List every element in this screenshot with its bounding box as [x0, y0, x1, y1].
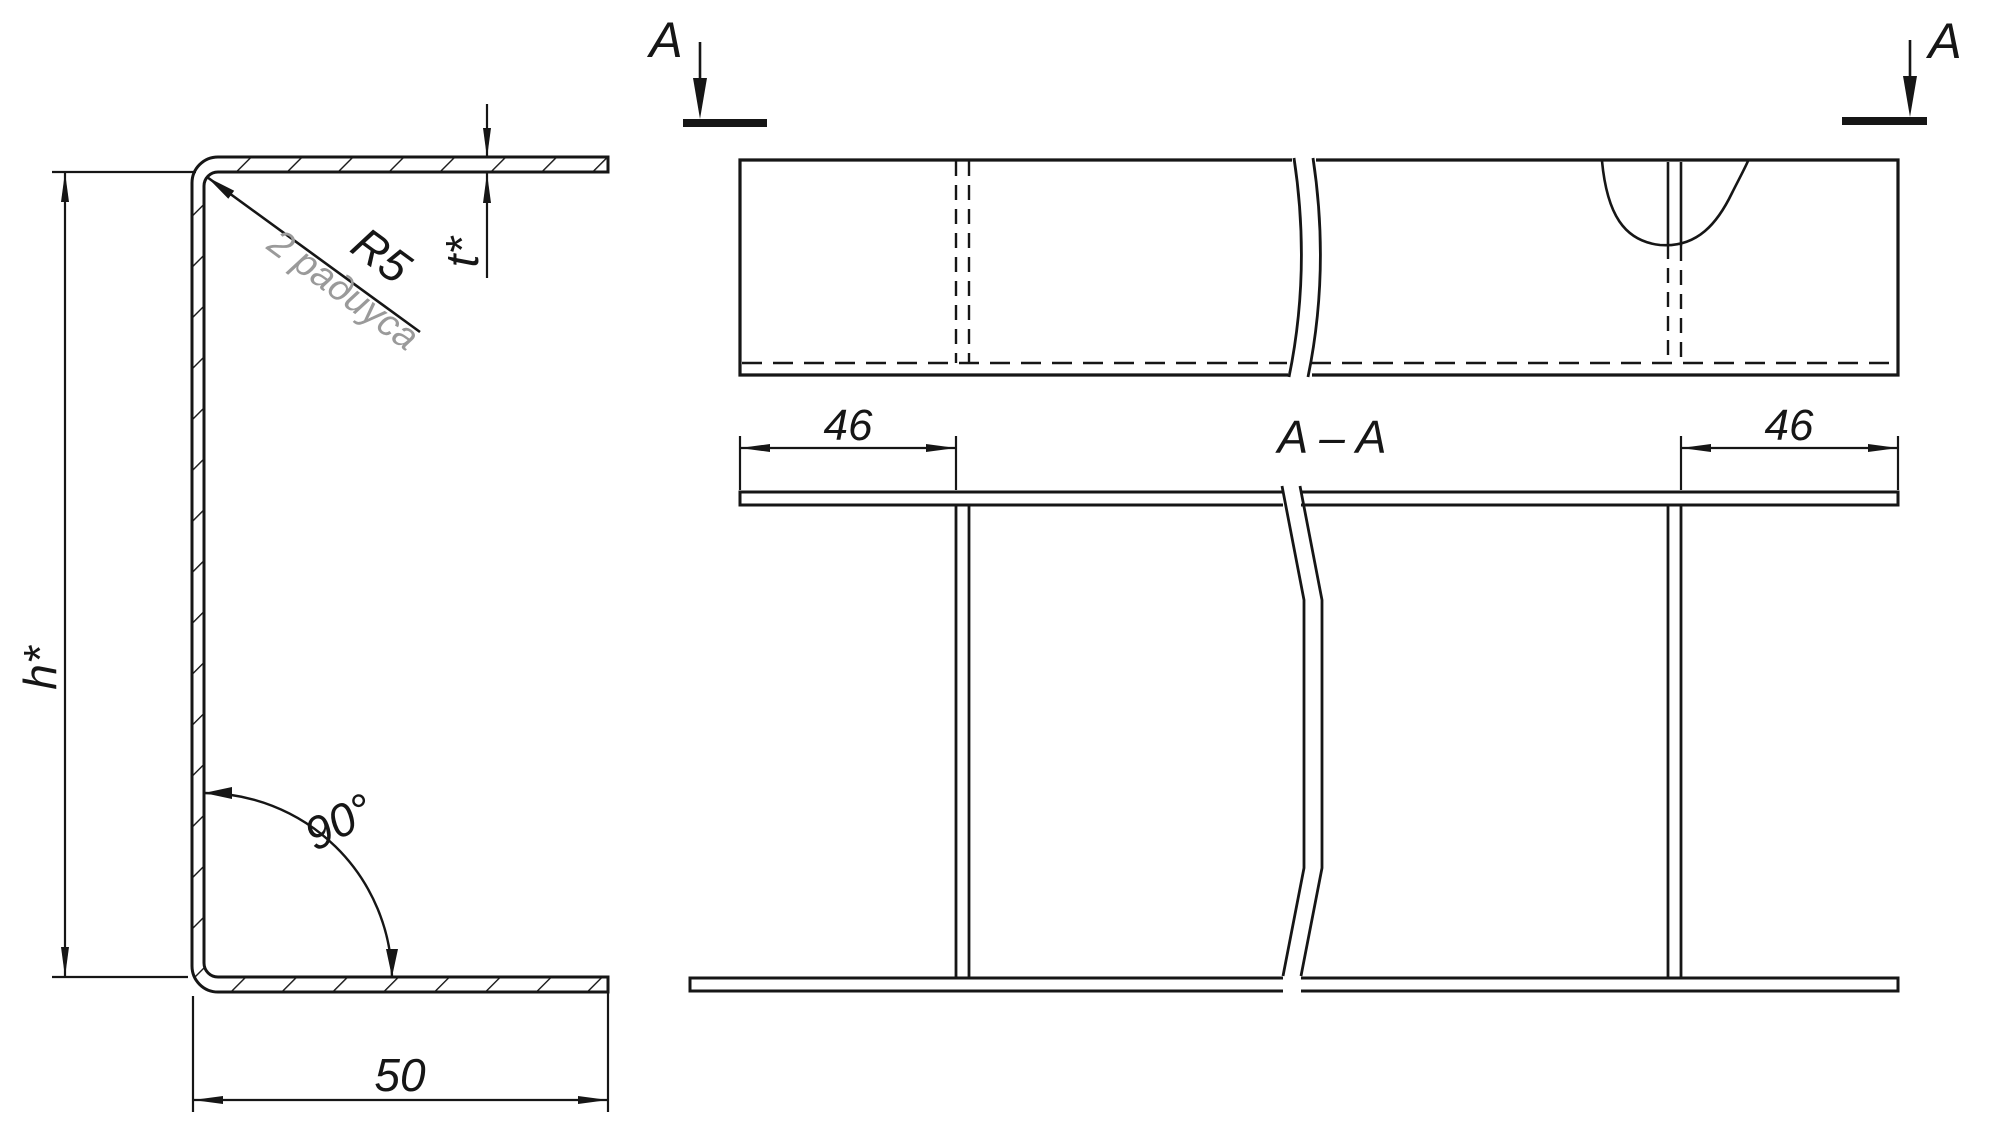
- arrow-down-icon: [386, 949, 398, 977]
- arrow-right-icon: [926, 444, 956, 452]
- section-aa-view: A – A 46 46: [690, 401, 1898, 991]
- section-top-strip: [740, 492, 1898, 505]
- height-extension-lines: [52, 172, 196, 977]
- left-rib-hidden-lines: [956, 161, 969, 363]
- height-dimension-label: h*: [14, 644, 66, 690]
- arrow-down-icon: [61, 947, 69, 977]
- section-letter-right: A: [1925, 13, 1961, 69]
- right-rib-hidden-lines: [1668, 244, 1681, 363]
- cut-arrow-down-icon: [1903, 76, 1917, 117]
- thickness-dimension: t*: [436, 104, 491, 278]
- section-cut-marker-right: A: [1842, 13, 1962, 121]
- rib-inset-left-label: 46: [824, 401, 873, 450]
- rib-inset-dimension-right: 46: [1681, 401, 1898, 490]
- radius-leader: R5 2 радиуса: [207, 177, 426, 359]
- cut-arrow-down-icon: [693, 78, 707, 119]
- arrow-right-icon: [578, 1096, 608, 1104]
- width-dimension-label: 50: [374, 1049, 426, 1101]
- arrow-left-icon: [1681, 444, 1711, 452]
- section-cut-marker-left: A: [646, 12, 767, 123]
- arrow-up-icon: [61, 172, 69, 202]
- arrow-left-icon: [204, 787, 232, 799]
- arrow-up-left-icon: [207, 177, 234, 199]
- arrow-left-icon: [193, 1096, 223, 1104]
- rib-inset-dimension-left: 46: [740, 401, 956, 490]
- section-bottom-strip: [690, 978, 1898, 991]
- width-dimension: 50: [193, 982, 608, 1112]
- section-break-lines: [1282, 486, 1322, 976]
- section-title: A – A: [1274, 411, 1386, 463]
- right-rib-visible-lines: [1668, 162, 1681, 246]
- drawing-canvas: h* t* R5 2 радиуса 90°: [0, 0, 2000, 1140]
- breakout-cut-boundary: [1602, 161, 1748, 245]
- rib-inset-right-label: 46: [1765, 401, 1814, 450]
- thickness-dimension-label: t*: [436, 235, 488, 268]
- angle-dimension-label: 90°: [296, 783, 382, 861]
- plan-view: A A: [646, 12, 1961, 377]
- arrow-down-icon: [483, 128, 491, 158]
- plan-break-lines: [1289, 158, 1320, 377]
- angle-dimension: 90°: [204, 783, 398, 977]
- arrow-up-icon: [483, 173, 491, 203]
- profile-hatched-section: [192, 157, 608, 992]
- arrow-left-icon: [740, 444, 770, 452]
- height-dimension: h*: [14, 172, 196, 977]
- drawing-sheet: h* t* R5 2 радиуса 90°: [0, 0, 2000, 1140]
- arrow-right-icon: [1868, 444, 1898, 452]
- section-letter-left: A: [646, 12, 682, 68]
- cross-section-view: h* t* R5 2 радиуса 90°: [14, 104, 608, 1112]
